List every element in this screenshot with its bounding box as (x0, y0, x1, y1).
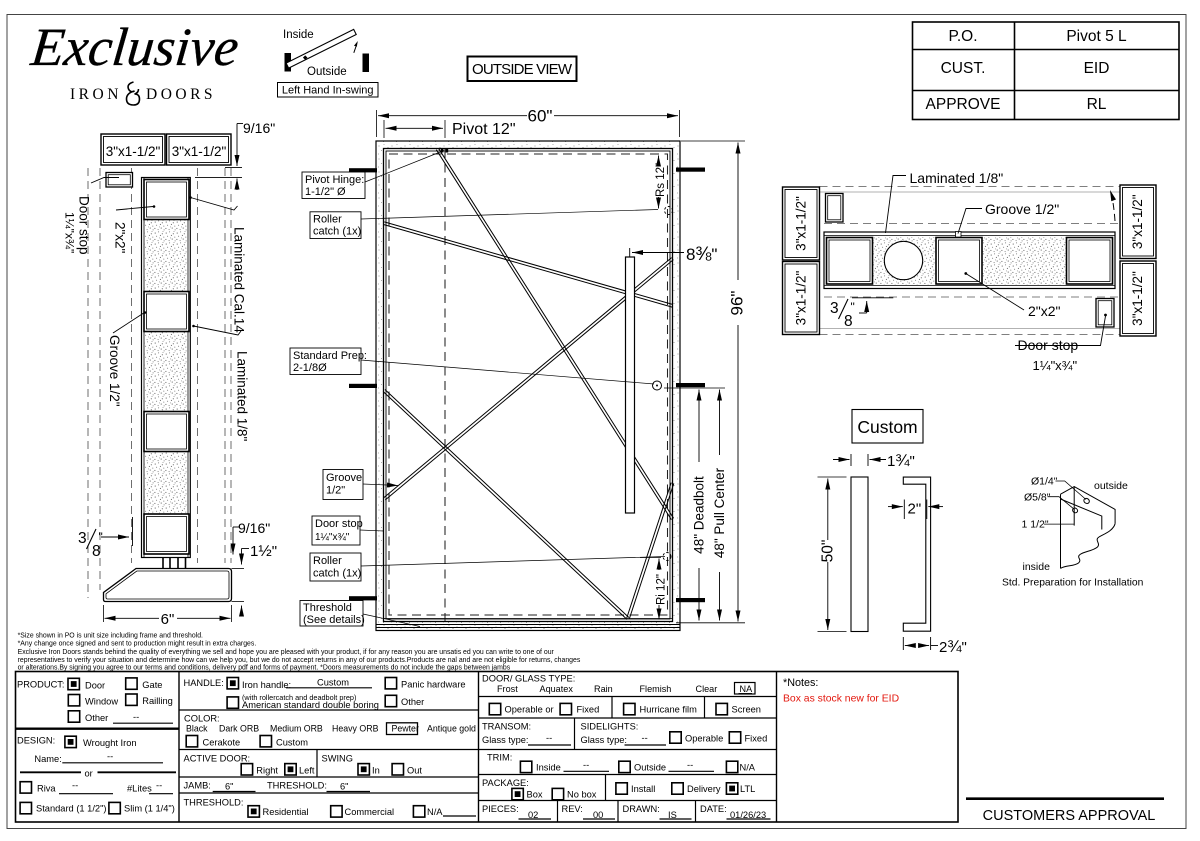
svg-text:No box: No box (567, 790, 597, 800)
svg-text:Commercial: Commercial (345, 807, 395, 817)
svg-text:Left Hand In-swing: Left Hand In-swing (282, 84, 374, 96)
svg-text:P.O.: P.O. (948, 28, 977, 45)
svg-text:Laminated 1/8": Laminated 1/8" (910, 170, 1004, 186)
svg-text:Laminated Cal.14: Laminated Cal.14 (232, 227, 247, 333)
svg-text:Groove 1/2": Groove 1/2" (985, 201, 1059, 217)
svg-text:1¾": 1¾" (887, 451, 915, 470)
svg-text:Window: Window (85, 697, 118, 707)
svg-text:2"x2": 2"x2" (1028, 303, 1061, 319)
svg-text:--: -- (107, 752, 113, 762)
svg-text:--: -- (546, 733, 552, 743)
svg-text:CUST.: CUST. (941, 60, 986, 77)
svg-text:Fixed: Fixed (577, 705, 600, 715)
svg-text:DRAWN:: DRAWN: (623, 804, 660, 814)
svg-text:Flemish: Flemish (640, 684, 672, 694)
svg-text:Outside: Outside (634, 763, 666, 773)
svg-text:Frost: Frost (497, 684, 518, 694)
svg-text:REV:: REV: (562, 804, 583, 814)
svg-text:Door: Door (85, 681, 105, 691)
svg-text:9/16": 9/16" (243, 120, 275, 136)
svg-text:representatives to verify your: representatives to verify your situation… (18, 657, 581, 664)
svg-text:THRESHOLD:: THRESHOLD: (267, 781, 327, 791)
svg-text:EID: EID (1084, 60, 1110, 77)
svg-text:TRANSOM:: TRANSOM: (482, 722, 531, 732)
svg-text:Out: Out (407, 766, 422, 776)
svg-text:3"x1-1/2": 3"x1-1/2" (106, 144, 161, 159)
svg-text:Delivery: Delivery (687, 784, 721, 794)
svg-text:Heavy ORB: Heavy ORB (332, 724, 379, 734)
svg-text:CUSTOMERS APPROVAL: CUSTOMERS APPROVAL (983, 808, 1156, 824)
svg-text:Glass type:: Glass type: (581, 735, 628, 745)
svg-text:2¾": 2¾" (939, 637, 967, 656)
svg-text:Groove: Groove (326, 472, 362, 484)
svg-text:Other: Other (85, 713, 108, 723)
svg-text:Riva: Riva (37, 784, 56, 794)
svg-text:Install: Install (631, 784, 655, 794)
svg-text:Rs 12": Rs 12" (655, 163, 667, 197)
svg-text:Fixed: Fixed (745, 734, 768, 744)
svg-text:Groove 1/2": Groove 1/2" (107, 335, 122, 407)
svg-text:--: -- (583, 760, 589, 770)
svg-text:Custom: Custom (276, 738, 308, 748)
svg-text:PACKAGE:: PACKAGE: (482, 778, 529, 788)
svg-text:6": 6" (340, 782, 348, 792)
svg-text:8⅜": 8⅜" (686, 244, 717, 265)
svg-text:Pivot 12": Pivot 12" (452, 121, 516, 138)
svg-text:Panic hardware: Panic hardware (401, 680, 466, 690)
svg-text:Exclusive Iron Doors stands be: Exclusive Iron Doors stands behind the q… (18, 649, 555, 656)
svg-text:1¼"x¾": 1¼"x¾" (315, 531, 350, 543)
svg-text:outside: outside (1094, 480, 1128, 492)
svg-text:Rain: Rain (594, 684, 613, 694)
svg-text:Dark ORB: Dark ORB (219, 724, 259, 734)
svg-text:Door stop: Door stop (1018, 337, 1079, 353)
svg-text:SIDELIGHTS:: SIDELIGHTS: (581, 722, 639, 732)
svg-text:2": 2" (908, 501, 922, 518)
svg-text:Ø1/4": Ø1/4" (1031, 476, 1058, 488)
svg-text:8: 8 (92, 543, 101, 560)
svg-text:Aquatex: Aquatex (540, 684, 574, 694)
svg-text:48" Pull Center: 48" Pull Center (712, 467, 727, 558)
svg-text:1¼"x¾": 1¼"x¾" (63, 212, 77, 253)
svg-text:Box as stock new for EID: Box as stock new for EID (783, 694, 899, 705)
svg-text:--: -- (687, 760, 693, 770)
svg-text:N/A: N/A (740, 763, 756, 773)
svg-text:48" Deadbolt: 48" Deadbolt (692, 476, 707, 554)
svg-text:Left: Left (299, 766, 315, 776)
svg-text:3"x1-1/2": 3"x1-1/2" (1130, 271, 1145, 326)
svg-text:TRIM:: TRIM: (487, 753, 512, 763)
svg-text:Roller: Roller (313, 555, 342, 567)
svg-text:Standard Prep:: Standard Prep: (293, 350, 367, 362)
svg-text:Pivot 5 L: Pivot 5 L (1066, 28, 1127, 45)
svg-text:In: In (372, 766, 380, 776)
svg-text:catch (1x): catch (1x) (313, 226, 361, 238)
svg-text:Laminated 1/8": Laminated 1/8" (235, 351, 250, 442)
svg-text:Hurricane film: Hurricane film (640, 705, 698, 715)
svg-text:--: -- (72, 781, 78, 791)
svg-text:ACTIVE DOOR:: ACTIVE DOOR: (184, 754, 251, 764)
svg-text:3"x1-1/2": 3"x1-1/2" (172, 144, 227, 159)
svg-text:DOORS: DOORS (146, 86, 216, 103)
svg-text:3: 3 (78, 530, 87, 547)
svg-text:Gate: Gate (142, 680, 162, 690)
svg-text:Screen: Screen (732, 705, 761, 715)
svg-text:(See details): (See details) (303, 614, 365, 626)
svg-text:8: 8 (844, 313, 853, 330)
svg-text:--: -- (133, 712, 139, 722)
svg-text:Right: Right (256, 766, 278, 776)
svg-text:Custom: Custom (317, 678, 349, 688)
svg-text:60": 60" (528, 107, 553, 126)
svg-text:Inside: Inside (283, 29, 314, 41)
svg-text:DESIGN:: DESIGN: (17, 736, 55, 746)
svg-text:COLOR:: COLOR: (184, 714, 220, 724)
svg-text:*Notes:: *Notes: (783, 677, 818, 689)
svg-text:Wrought Iron: Wrought Iron (83, 738, 137, 748)
svg-text:Antique gold: Antique gold (427, 724, 476, 734)
svg-text:6": 6" (225, 782, 233, 792)
svg-text:1/2": 1/2" (326, 485, 345, 497)
svg-text:1-1/2" Ø: 1-1/2" Ø (305, 186, 346, 198)
svg-text:Residential: Residential (263, 807, 309, 817)
svg-text:Slim (1 1/4"): Slim (1 1/4") (124, 804, 175, 814)
svg-text:HANDLE:: HANDLE: (184, 678, 224, 688)
svg-text:Iron handle:: Iron handle: (242, 680, 291, 690)
svg-text:Glass type:: Glass type: (482, 735, 529, 745)
svg-text:Pivot Hinge:: Pivot Hinge: (305, 174, 364, 186)
svg-text:3"x1-1/2": 3"x1-1/2" (794, 196, 809, 251)
svg-text:3"x1-1/2": 3"x1-1/2" (1130, 194, 1145, 249)
svg-text:N/A: N/A (427, 807, 443, 817)
svg-text:3: 3 (830, 300, 839, 317)
svg-text:Railling: Railling (142, 696, 173, 706)
svg-text:2-1/8Ø: 2-1/8Ø (293, 362, 327, 374)
svg-text:Cerakote: Cerakote (203, 738, 241, 748)
svg-text:50": 50" (820, 540, 837, 563)
svg-text:Door stop: Door stop (315, 518, 363, 530)
svg-text:": " (851, 300, 855, 314)
svg-text:IRON: IRON (70, 86, 122, 103)
svg-text:Other: Other (401, 697, 424, 707)
svg-text:Name:: Name: (34, 754, 61, 764)
svg-text:JAMB:: JAMB: (184, 781, 211, 791)
svg-text:Box: Box (527, 790, 543, 800)
svg-text:96": 96" (728, 291, 747, 316)
svg-text:Clear: Clear (696, 684, 718, 694)
svg-text:Inside: Inside (536, 763, 561, 773)
svg-text:#Lites: #Lites (127, 784, 152, 794)
svg-text:Black: Black (186, 724, 208, 734)
svg-text:DOOR/ GLASS TYPE:: DOOR/ GLASS TYPE: (482, 674, 575, 684)
svg-text:*Size shown in PO is unit size: *Size shown in PO is unit size including… (18, 633, 203, 640)
svg-text:Outside: Outside (307, 66, 347, 78)
svg-text:or alterations.By signing you: or alterations.By signing you agree to o… (18, 665, 511, 672)
svg-text:PRODUCT:: PRODUCT: (17, 680, 65, 690)
svg-text:--: -- (642, 733, 648, 743)
svg-text:Pewter: Pewter (392, 724, 419, 734)
svg-text:Threshold: Threshold (303, 602, 352, 614)
svg-text:OUTSIDE VIEW: OUTSIDE VIEW (472, 61, 573, 78)
svg-text:Operable: Operable (685, 734, 723, 744)
svg-text:1¼"x¾": 1¼"x¾" (1033, 358, 1078, 373)
svg-text:Roller: Roller (313, 214, 342, 226)
svg-text:THRESHOLD:: THRESHOLD: (184, 798, 244, 808)
svg-text:9/16": 9/16" (238, 520, 270, 536)
svg-text:6": 6" (161, 611, 175, 628)
svg-text:Door stop: Door stop (77, 196, 92, 255)
svg-text:American standard double borin: American standard double boring (242, 700, 379, 710)
svg-text:Std. Preparation for Installat: Std. Preparation for Installation (1002, 578, 1144, 589)
svg-text:Exclusive: Exclusive (28, 17, 242, 77)
svg-text:catch (1x): catch (1x) (313, 568, 361, 580)
svg-text:Standard (1 1/2"): Standard (1 1/2") (36, 804, 107, 814)
svg-text:Ø5/8": Ø5/8" (1024, 492, 1051, 504)
svg-text:1 1/2": 1 1/2" (1022, 519, 1049, 531)
svg-text:Ri 12": Ri 12" (656, 574, 668, 605)
svg-text:3"x1-1/2": 3"x1-1/2" (794, 270, 809, 325)
svg-text:*Any change once signed and se: *Any change once signed and sent to prod… (18, 641, 257, 648)
svg-text:Operable or: Operable or (505, 705, 554, 715)
svg-text:--: -- (156, 781, 162, 791)
svg-text:Medium ORB: Medium ORB (270, 724, 323, 734)
svg-text:LTL: LTL (740, 784, 755, 794)
svg-text:PIECES:: PIECES: (482, 804, 519, 814)
svg-text:SWING: SWING (322, 754, 354, 764)
svg-text:DATE:: DATE: (700, 804, 727, 814)
svg-text:APPROVE: APPROVE (926, 96, 1001, 113)
svg-text:2"x2": 2"x2" (113, 222, 128, 254)
svg-text:1½": 1½" (250, 543, 277, 560)
svg-text:inside: inside (1023, 561, 1051, 573)
svg-text:or: or (85, 769, 93, 779)
svg-text:RL: RL (1087, 96, 1107, 113)
svg-text:Custom: Custom (857, 417, 917, 437)
svg-text:NA: NA (740, 684, 754, 694)
